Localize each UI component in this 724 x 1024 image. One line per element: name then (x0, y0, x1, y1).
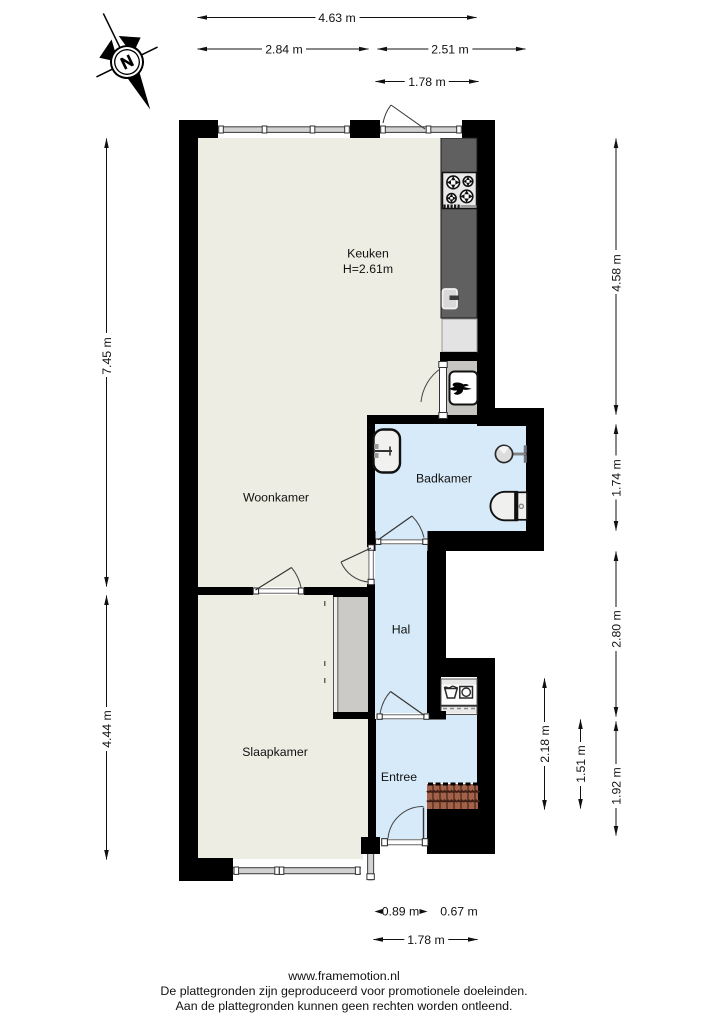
svg-text:7.45 m: 7.45 m (100, 337, 114, 375)
svg-text:4.63 m: 4.63 m (318, 11, 356, 25)
svg-text:De plattegronden zijn geproduc: De plattegronden zijn geproduceerd voor … (160, 984, 527, 998)
svg-text:4.58 m: 4.58 m (610, 254, 624, 292)
svg-text:2.80 m: 2.80 m (610, 610, 624, 648)
svg-text:0.89 m: 0.89 m (382, 905, 420, 919)
svg-text:1.92 m: 1.92 m (610, 767, 624, 805)
svg-text:www.framemotion.nl: www.framemotion.nl (287, 969, 400, 983)
svg-text:Badkamer: Badkamer (416, 472, 472, 486)
svg-text:Aan de plattegronden kunnen ge: Aan de plattegronden kunnen geen rechten… (176, 999, 513, 1013)
svg-text:H=2.61m: H=2.61m (343, 262, 393, 276)
svg-text:2.18 m: 2.18 m (538, 725, 552, 763)
svg-text:2.51 m: 2.51 m (431, 43, 469, 57)
svg-text:Keuken: Keuken (347, 247, 389, 261)
svg-text:0.67 m: 0.67 m (440, 905, 478, 919)
svg-text:Entree: Entree (381, 770, 417, 784)
svg-text:1.78 m: 1.78 m (407, 933, 445, 947)
svg-text:Hal: Hal (392, 623, 410, 637)
svg-text:Slaapkamer: Slaapkamer (242, 745, 308, 759)
svg-text:1.51 m: 1.51 m (574, 745, 588, 783)
svg-text:1.74 m: 1.74 m (610, 459, 624, 497)
svg-text:Woonkamer: Woonkamer (243, 491, 309, 505)
svg-text:2.84 m: 2.84 m (265, 43, 303, 57)
svg-text:4.44 m: 4.44 m (100, 710, 114, 748)
svg-text:1.78 m: 1.78 m (408, 75, 446, 89)
